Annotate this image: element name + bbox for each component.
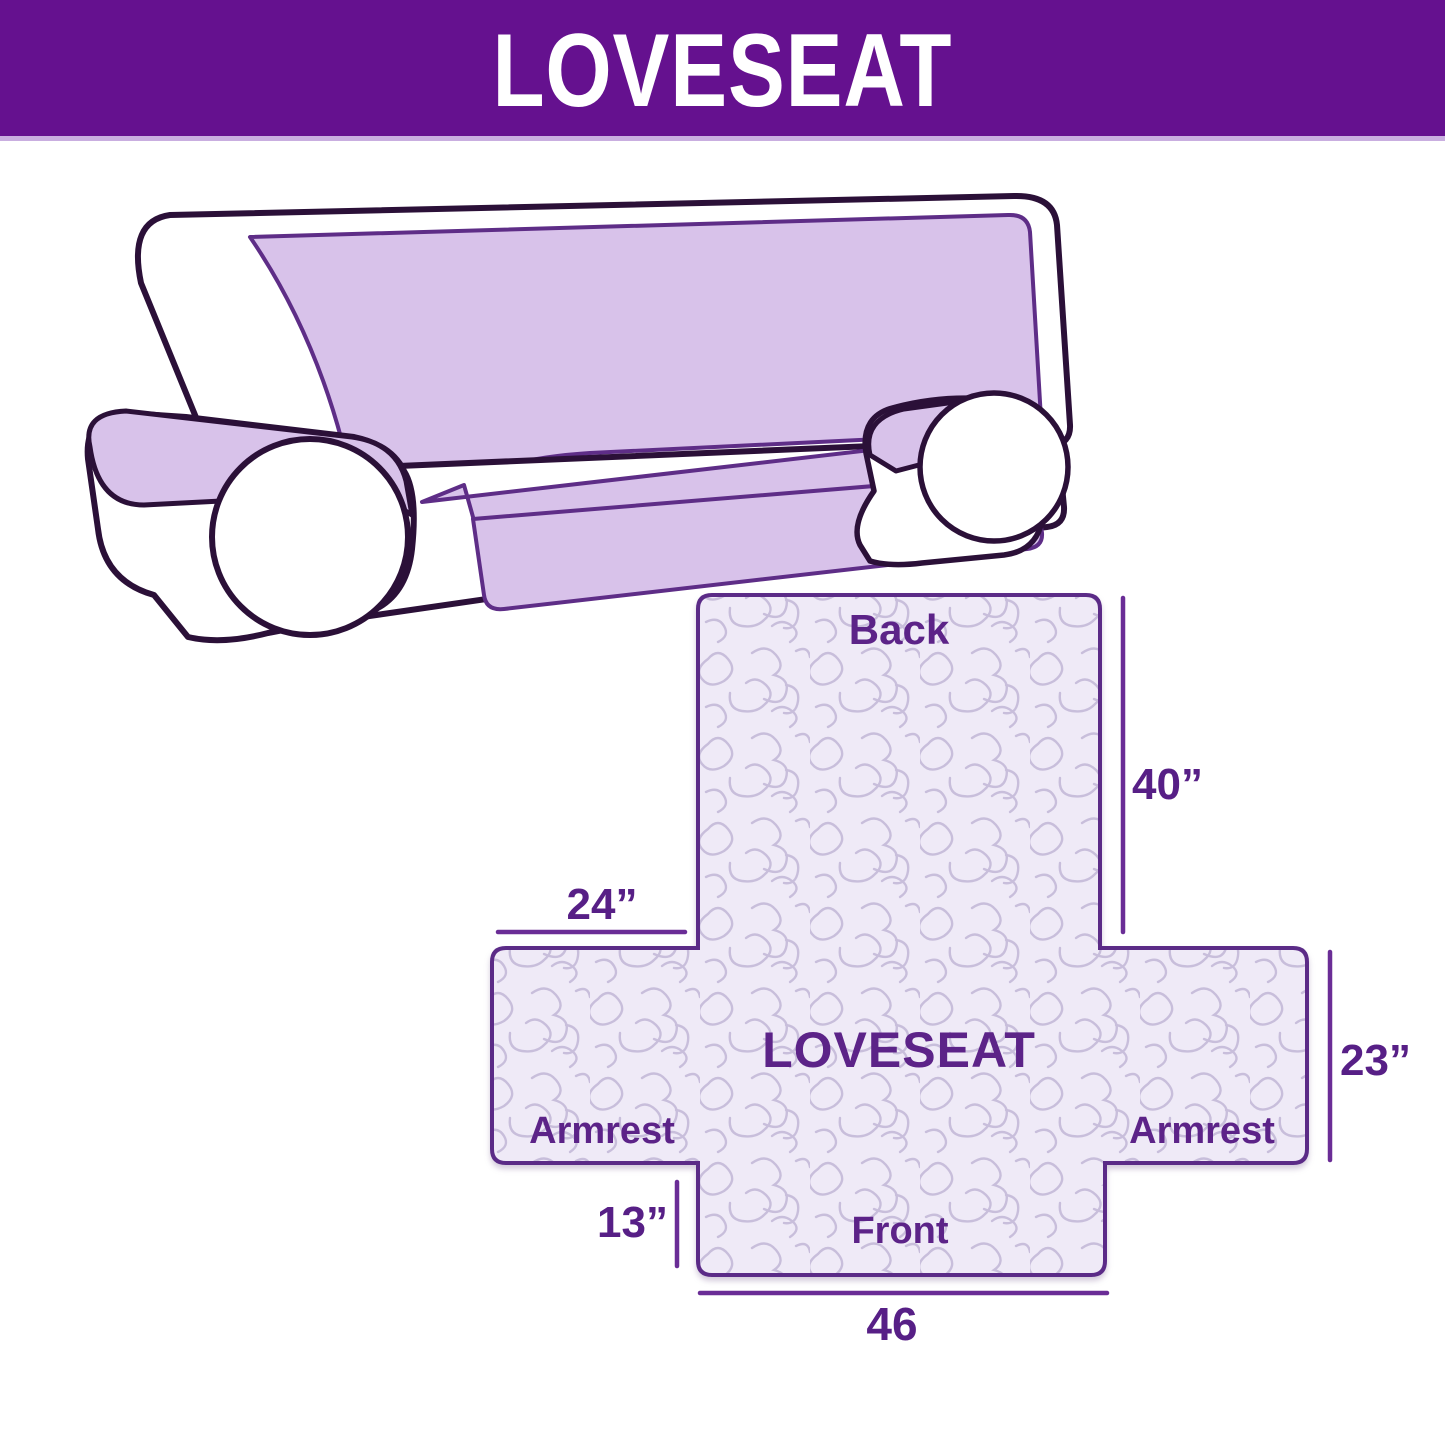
header-banner: LOVESEAT — [0, 0, 1445, 136]
dim-front-height-label: 13” — [578, 1200, 668, 1246]
header-underline — [0, 136, 1445, 141]
front-panel-label: Front — [800, 1212, 1000, 1252]
page-title: LOVESEAT — [493, 13, 953, 123]
armrest-right-label: Armrest — [1102, 1112, 1302, 1152]
dim-side-height-label: 23” — [1340, 1038, 1411, 1084]
sofa-left-arm — [88, 411, 414, 640]
sofa-right-arm — [857, 393, 1068, 565]
dim-front-width-label: 46 — [842, 1300, 942, 1348]
dim-back-height-label: 40” — [1132, 762, 1203, 808]
dim-armrest-width-label: 24” — [522, 882, 682, 928]
armrest-left-label: Armrest — [502, 1112, 702, 1152]
back-panel-label: Back — [799, 608, 999, 652]
cover-outline — [492, 595, 1307, 1275]
cover-diagram: Back LOVESEAT Armrest Armrest Front 40” … — [480, 560, 1430, 1360]
center-label: LOVESEAT — [699, 1024, 1099, 1077]
